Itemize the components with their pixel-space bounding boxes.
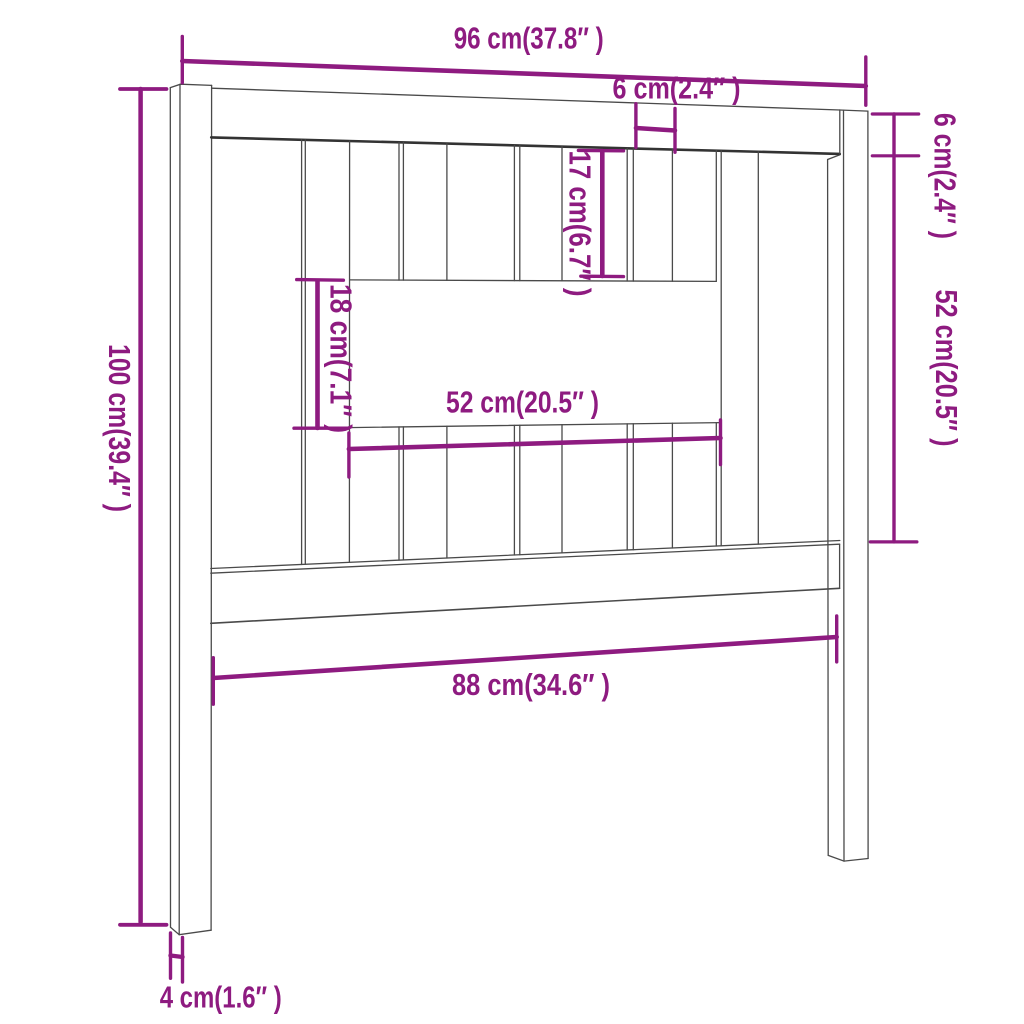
svg-text:6 cm(2.4″ ): 6 cm(2.4″ ) xyxy=(613,71,741,106)
svg-text:100 cm(39.4″ ): 100 cm(39.4″ ) xyxy=(102,344,137,512)
svg-text:18 cm(7.1″ ): 18 cm(7.1″ ) xyxy=(324,284,359,433)
svg-text:52 cm(20.5″ ): 52 cm(20.5″ ) xyxy=(446,384,599,419)
svg-text:4 cm(1.6″ ): 4 cm(1.6″ ) xyxy=(160,979,282,1014)
svg-text:17 cm(6.7″ ): 17 cm(6.7″ ) xyxy=(563,151,598,297)
svg-text:96 cm(37.8″ ): 96 cm(37.8″ ) xyxy=(454,21,604,56)
svg-text:88 cm(34.6″ ): 88 cm(34.6″ ) xyxy=(452,667,610,702)
svg-text:52 cm(20.5″ ): 52 cm(20.5″ ) xyxy=(929,290,964,447)
svg-text:6 cm(2.4″ ): 6 cm(2.4″ ) xyxy=(927,113,962,239)
